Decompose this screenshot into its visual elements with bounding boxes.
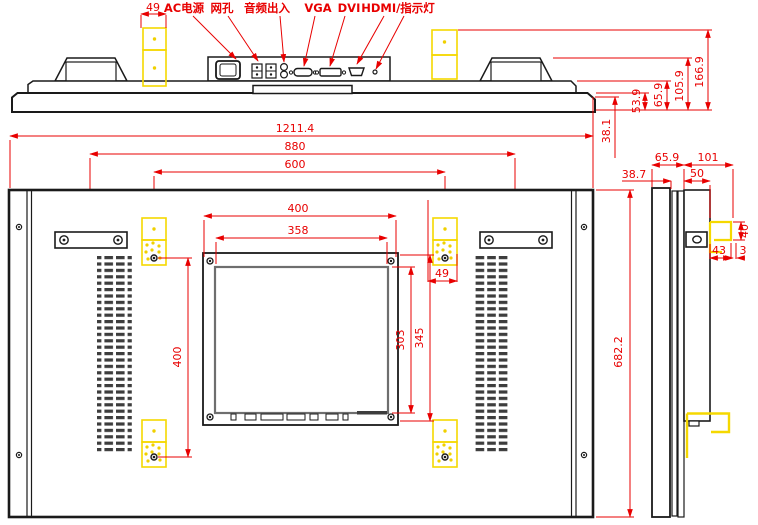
- connector-panel: [208, 57, 390, 81]
- top-handle-left-inner: [66, 62, 116, 81]
- dim-overall-height: 682.2: [612, 336, 625, 368]
- side-body-notch: [689, 421, 699, 426]
- indicator-led: [373, 70, 377, 74]
- dim-module-width: 400: [288, 202, 309, 215]
- dvi-port: [315, 69, 345, 77]
- mount-bar-left: [55, 232, 127, 248]
- dim-hook-width: 43: [712, 244, 726, 257]
- top-handle-right-inner: [491, 62, 541, 81]
- vent-slots-right: [475, 256, 510, 452]
- vent-slots-left: [97, 256, 132, 452]
- dim-offset-38: 38.1: [600, 119, 613, 144]
- dim-module-height: 345: [413, 328, 426, 349]
- dim-mount-span-v: 400: [171, 347, 184, 368]
- dim-mount-span-h: 600: [285, 158, 306, 171]
- dim-hook-height: 40: [738, 224, 751, 238]
- monitor-dimension-drawing: AC电源 网孔 音频出入 VGA DVI HDMI/指示灯 49: [0, 0, 758, 525]
- hdmi-port: [349, 68, 364, 76]
- dim-body-depth: 50: [690, 167, 704, 180]
- dim-depth-65: 65.9: [652, 83, 665, 108]
- label-audio: 音频出入: [244, 1, 290, 15]
- dim-top-bracket-width: 49: [141, 1, 166, 28]
- svg-text:49: 49: [146, 1, 160, 14]
- label-ac-power: AC电源: [164, 1, 205, 15]
- front-view: [9, 190, 593, 517]
- label-mesh-holes: 网孔: [211, 1, 234, 15]
- top-center-bump: [253, 86, 352, 94]
- label-dvi: DVI: [338, 1, 361, 15]
- top-view: [12, 28, 595, 112]
- top-front-band: [12, 93, 595, 112]
- dim-rear-depth: 101: [698, 151, 719, 164]
- dim-bezel-depth: 38.7: [622, 168, 647, 181]
- dim-display-width: 358: [288, 224, 309, 237]
- dim-overall-width: 1211.4: [276, 122, 315, 135]
- side-back-body: [684, 190, 710, 421]
- dim-bracket-width: 49: [435, 267, 449, 280]
- wall-bracket-top-left: [143, 28, 166, 86]
- dim-depth-53: 53.9: [630, 89, 643, 114]
- dim-hook-gap: 3: [740, 244, 747, 257]
- label-vga: VGA: [304, 1, 331, 15]
- mount-bar-right: [480, 232, 552, 248]
- dim-depth-166: 166.9: [693, 56, 706, 88]
- side-view: [652, 188, 731, 517]
- dim-display-height: 303: [394, 330, 407, 351]
- dim-depth-105: 105.9: [673, 70, 686, 102]
- side-mount-bar: [686, 232, 707, 247]
- label-hdmi-indicator: HDMI/指示灯: [361, 1, 435, 15]
- dim-front-depth: 65.9: [655, 151, 680, 164]
- wall-bracket-top-right: [432, 30, 457, 79]
- display-module: [203, 253, 398, 425]
- technical-drawing: AC电源 网孔 音频出入 VGA DVI HDMI/指示灯 49: [0, 0, 758, 525]
- side-front-bezel: [652, 188, 670, 517]
- dim-handle-span: 880: [285, 140, 306, 153]
